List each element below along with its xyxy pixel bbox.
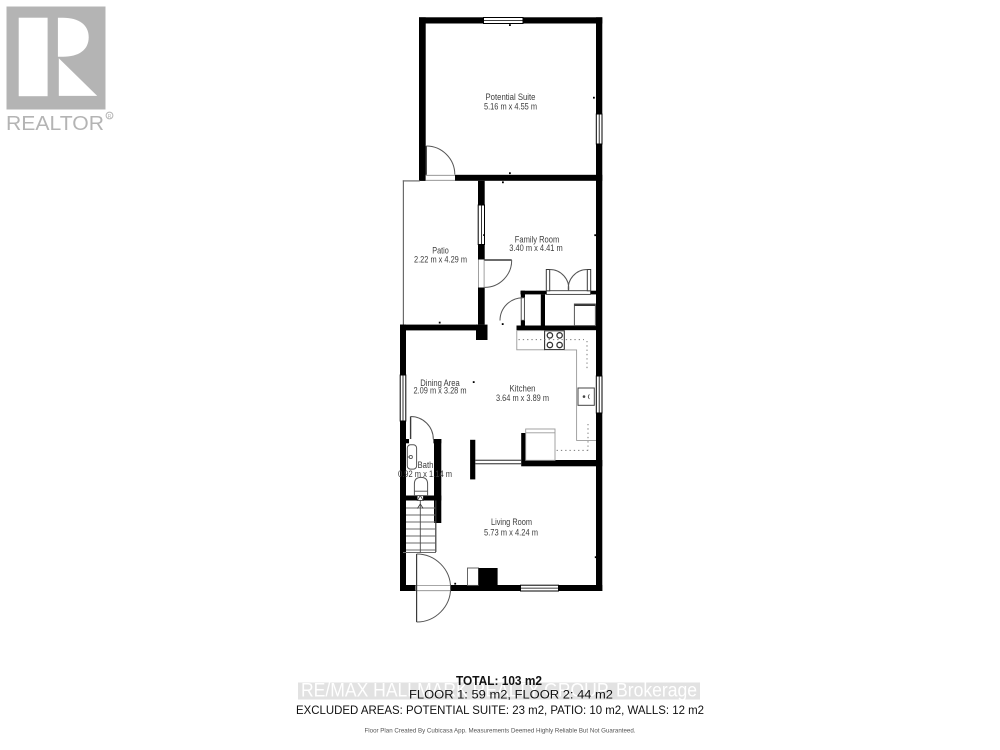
svg-text:Living Room: Living Room: [491, 517, 532, 527]
svg-text:TOTAL: 103 m2: TOTAL: 103 m2: [456, 673, 542, 688]
svg-text:2.09 m x 3.28 m: 2.09 m x 3.28 m: [414, 386, 467, 396]
svg-text:Floor Plan Created By Cubicasa: Floor Plan Created By Cubicasa App. Meas…: [365, 728, 636, 735]
svg-text:R: R: [108, 114, 112, 120]
svg-text:5.16 m x 4.55 m: 5.16 m x 4.55 m: [484, 102, 537, 112]
svg-text:5.73 m x 4.24 m: 5.73 m x 4.24 m: [484, 528, 538, 538]
svg-text:EXCLUDED AREAS: POTENTIAL SUIT: EXCLUDED AREAS: POTENTIAL SUITE: 23 m2, …: [296, 703, 704, 717]
svg-text:REALTOR: REALTOR: [6, 113, 104, 135]
svg-text:0.92 m x 1.14 m: 0.92 m x 1.14 m: [398, 469, 452, 479]
svg-text:2.22 m x 4.29 m: 2.22 m x 4.29 m: [414, 254, 467, 264]
svg-text:3.40 m x 4.41 m: 3.40 m x 4.41 m: [509, 243, 563, 253]
svg-text:FLOOR 1: 59 m2, FLOOR 2: 44 m2: FLOOR 1: 59 m2, FLOOR 2: 44 m2: [409, 688, 613, 702]
svg-text:3.64 m x 3.89 m: 3.64 m x 3.89 m: [496, 393, 549, 403]
